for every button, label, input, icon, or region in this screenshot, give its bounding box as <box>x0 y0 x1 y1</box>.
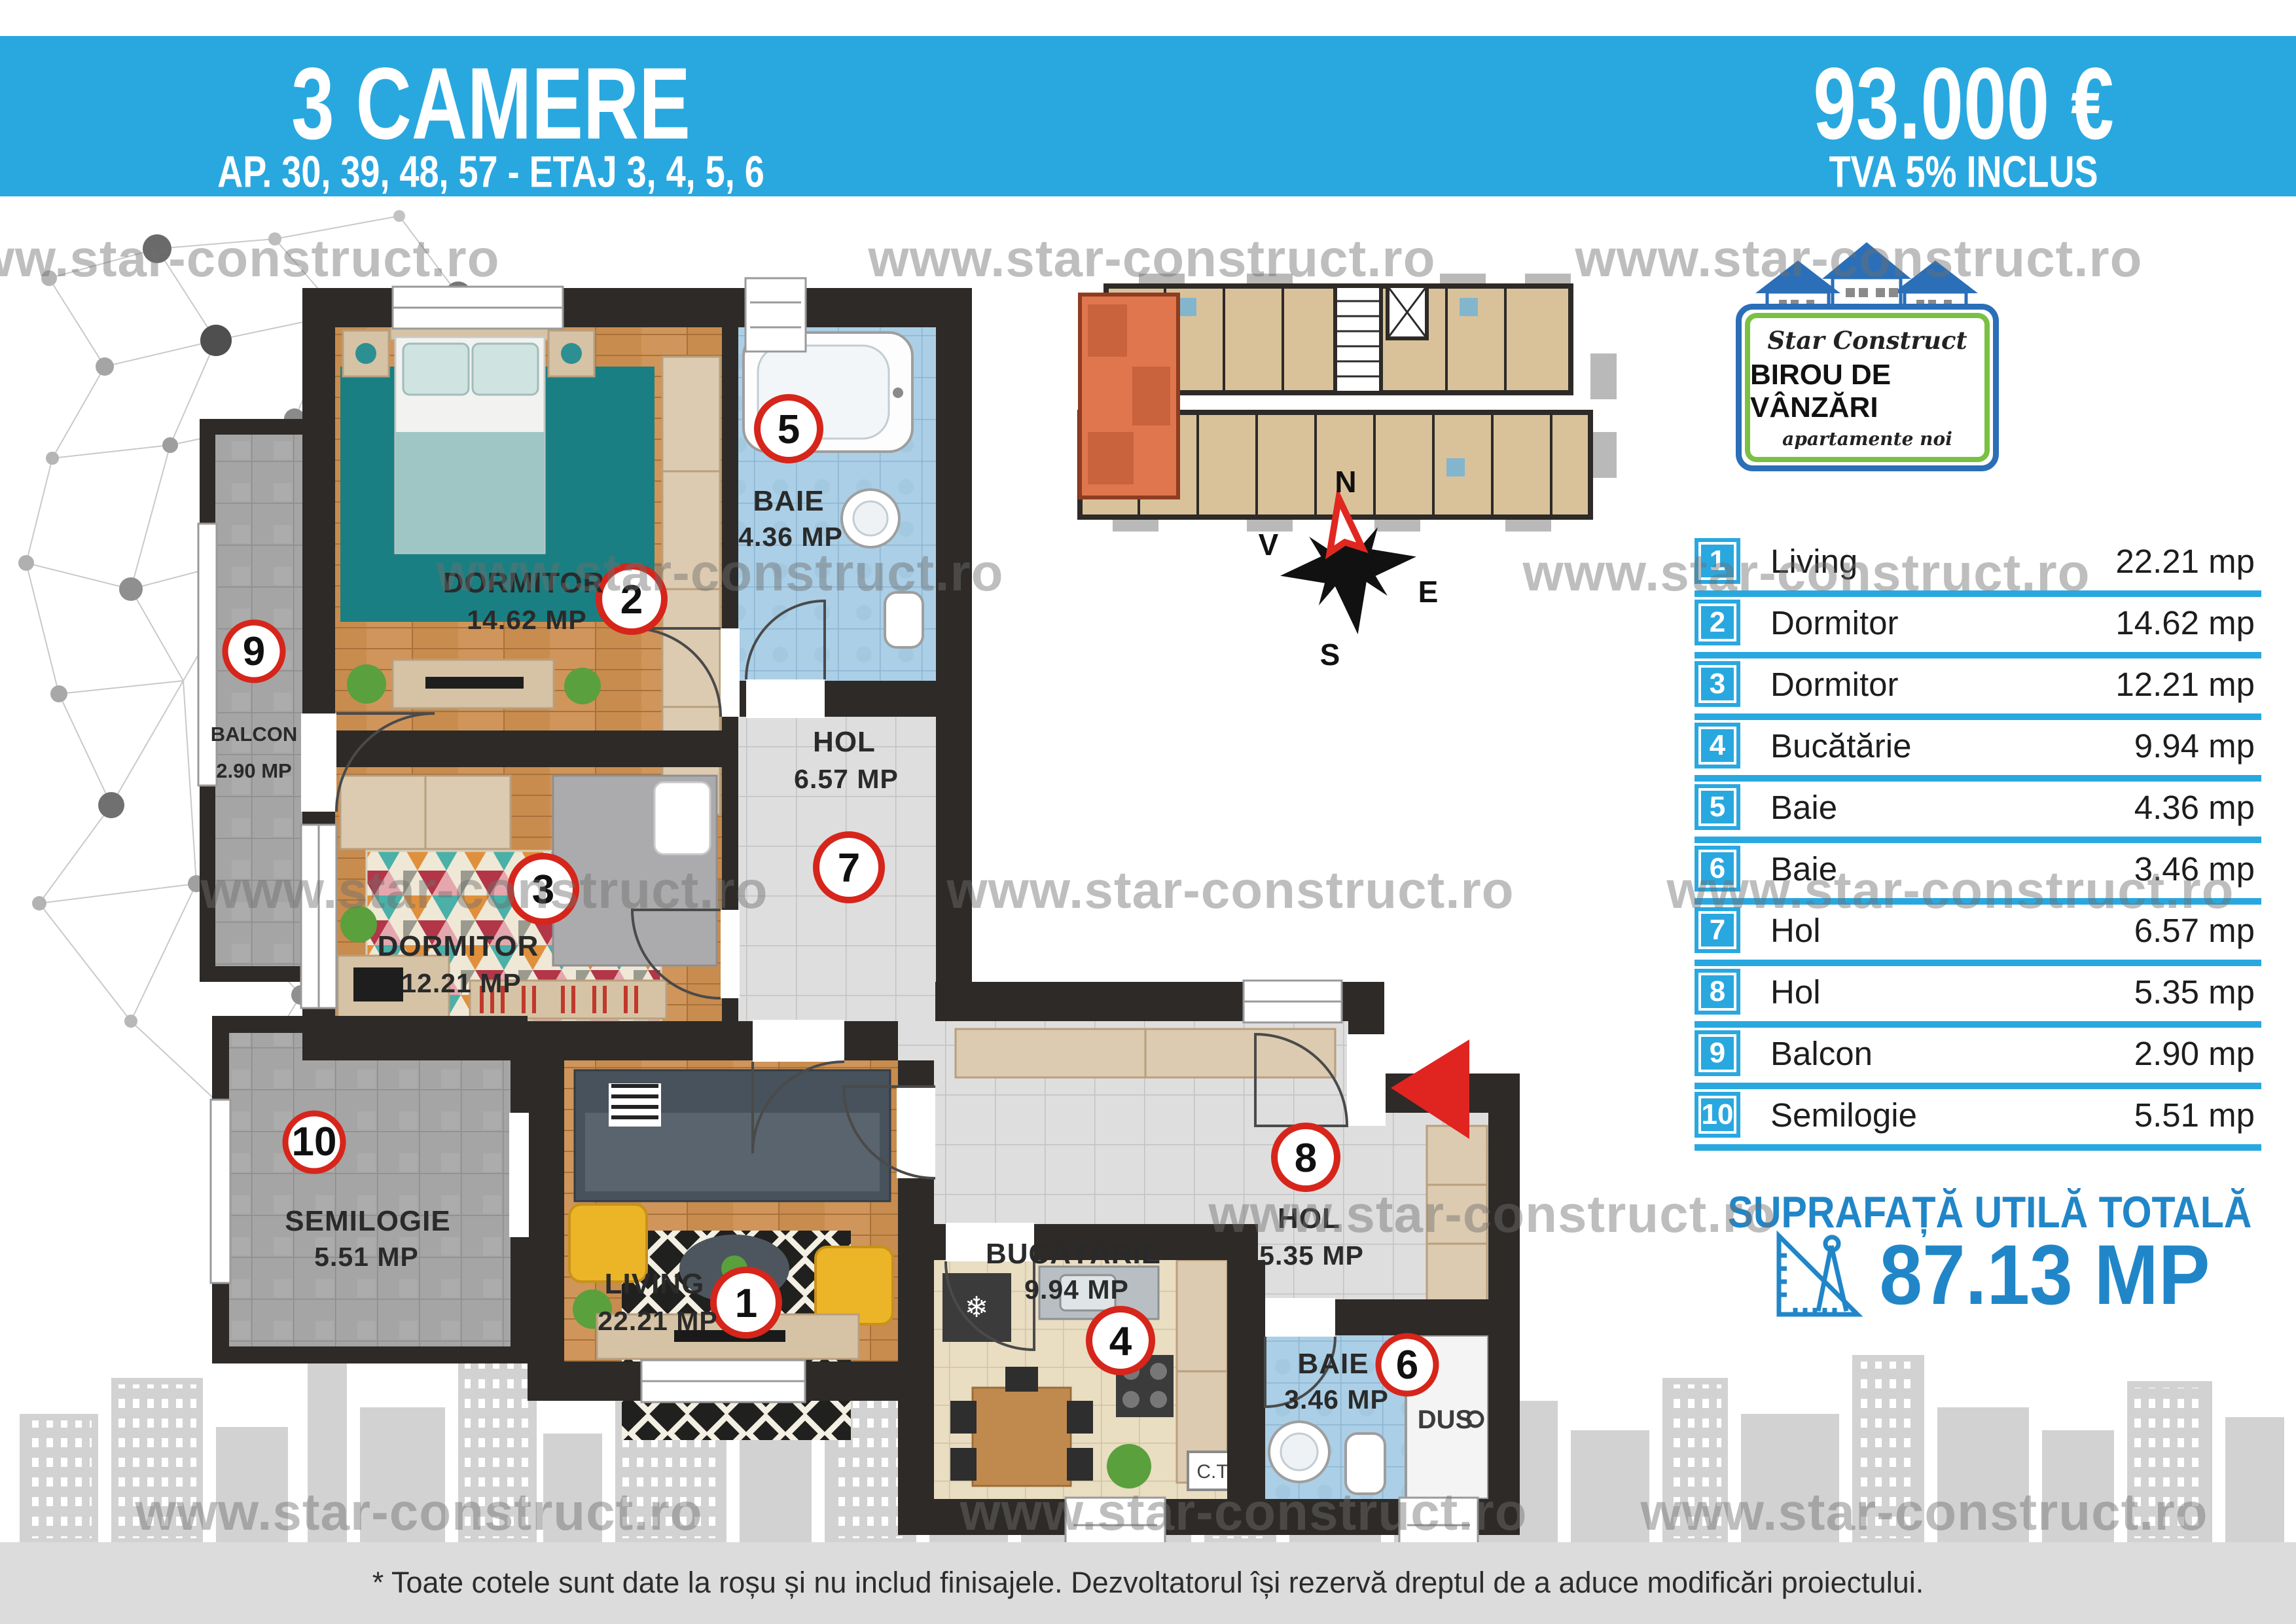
row-underline <box>1695 1144 2261 1151</box>
svg-text:LIVING: LIVING <box>605 1268 705 1300</box>
svg-text:6: 6 <box>1396 1343 1418 1388</box>
svg-text:7: 7 <box>838 846 860 891</box>
compass-v: V <box>1259 528 1279 562</box>
row-room-area: 22.21 mp <box>2115 542 2255 581</box>
row-room-area: 5.51 mp <box>2134 1096 2255 1134</box>
row-room-label: Hol <box>1770 911 1821 950</box>
table-row: 6Baie3.46 mp <box>1691 844 2261 906</box>
svg-text:HOL: HOL <box>813 726 876 758</box>
svg-text:14.62 MP: 14.62 MP <box>467 605 587 635</box>
dining-table <box>973 1388 1071 1486</box>
ruler-compass-icon <box>1769 1229 1867 1321</box>
svg-text:2: 2 <box>620 577 643 623</box>
svg-text:4.36 MP: 4.36 MP <box>738 522 843 552</box>
row-room-area: 5.35 mp <box>2134 973 2255 1011</box>
row-number-badge: 10 <box>1695 1092 1740 1138</box>
row-number-badge: 2 <box>1695 600 1740 645</box>
row-underline <box>1695 1021 2261 1028</box>
svg-text:4: 4 <box>1109 1319 1132 1364</box>
svg-text:DORMITOR: DORMITOR <box>443 567 605 599</box>
total-area-value-row: 87.13 MP <box>1676 1229 2296 1321</box>
table-row: 1Living22.21 mp <box>1691 537 2261 598</box>
room-balcon-floor <box>215 435 302 966</box>
logo-brand: Star Construct <box>1767 326 1967 355</box>
row-room-label: Dormitor <box>1770 665 1899 704</box>
row-number-badge: 9 <box>1695 1030 1740 1076</box>
row-number-badge: 4 <box>1695 723 1740 768</box>
row-number-badge: 7 <box>1695 907 1740 953</box>
row-room-label: Living <box>1770 542 1857 581</box>
svg-text:5.51 MP: 5.51 MP <box>314 1242 419 1272</box>
row-underline <box>1695 590 2261 597</box>
table-row: 10Semilogie5.51 mp <box>1691 1091 2261 1152</box>
row-room-label: Baie <box>1770 850 1837 888</box>
star-construct-logo: Star Construct BIROU DE VÂNZĂRI apartame… <box>1736 241 1998 467</box>
compass-s: S <box>1320 638 1340 672</box>
svg-text:1: 1 <box>735 1281 757 1326</box>
svg-text:5: 5 <box>778 407 800 452</box>
svg-text:BAIE: BAIE <box>753 485 824 517</box>
hall-wardrobe <box>1427 1126 1487 1301</box>
footer-band: * Toate cotele sunt date la roșu și nu i… <box>0 1542 2296 1624</box>
svg-text:2.90 MP: 2.90 MP <box>216 759 291 782</box>
svg-text:3: 3 <box>532 867 554 912</box>
row-room-label: Dormitor <box>1770 604 1899 642</box>
logo-tagline: apartamente noi <box>1782 428 1952 450</box>
row-underline <box>1695 775 2261 782</box>
svg-text:BALCON: BALCON <box>211 723 298 746</box>
row-room-area: 14.62 mp <box>2115 604 2255 642</box>
row-room-label: Balcon <box>1770 1034 1873 1073</box>
row-room-area: 2.90 mp <box>2134 1034 2255 1073</box>
logo-badge: Star Construct BIROU DE VÂNZĂRI apartame… <box>1736 304 1999 471</box>
svg-text:6.57 MP: 6.57 MP <box>794 764 899 794</box>
row-room-area: 4.36 mp <box>2134 788 2255 827</box>
table-row: 4Bucătărie9.94 mp <box>1691 721 2261 783</box>
dus-label: DUS <box>1418 1405 1473 1434</box>
toilet <box>1346 1434 1385 1494</box>
table-row: 3Dormitor12.21 mp <box>1691 660 2261 721</box>
row-underline <box>1695 713 2261 720</box>
svg-text:5.35 MP: 5.35 MP <box>1259 1240 1364 1271</box>
toilet <box>885 592 923 647</box>
svg-text:22.21 MP: 22.21 MP <box>598 1306 718 1336</box>
table-row: 2Dormitor14.62 mp <box>1691 598 2261 660</box>
row-room-area: 9.94 mp <box>2134 727 2255 765</box>
svg-text:9: 9 <box>243 629 265 674</box>
plant <box>564 668 601 704</box>
row-room-area: 3.46 mp <box>2134 850 2255 888</box>
table-row: 7Hol6.57 mp <box>1691 906 2261 967</box>
row-underline <box>1695 960 2261 966</box>
svg-text:9.94 MP: 9.94 MP <box>1024 1274 1129 1305</box>
plant <box>347 664 386 704</box>
row-room-label: Bucătărie <box>1770 727 1911 765</box>
row-room-area: 6.57 mp <box>2134 911 2255 950</box>
table-row: 5Baie4.36 mp <box>1691 783 2261 844</box>
total-area-value: 87.13 MP <box>1879 1226 2210 1324</box>
svg-text:BAIE: BAIE <box>1297 1348 1369 1380</box>
room-semilogie-floor <box>229 1033 511 1346</box>
svg-text:3.46 MP: 3.46 MP <box>1284 1384 1389 1415</box>
svg-text:8: 8 <box>1295 1136 1317 1181</box>
row-room-label: Baie <box>1770 788 1837 827</box>
svg-text:BUCĂTĂRIE: BUCĂTĂRIE <box>986 1237 1161 1270</box>
armchair-yellow <box>816 1247 893 1324</box>
svg-text:DORMITOR: DORMITOR <box>378 930 539 962</box>
row-number-badge: 5 <box>1695 784 1740 830</box>
plant <box>1107 1444 1151 1489</box>
row-number-badge: 1 <box>1695 538 1740 584</box>
svg-text:10: 10 <box>292 1119 337 1164</box>
row-room-label: Hol <box>1770 973 1821 1011</box>
row-number-badge: 3 <box>1695 661 1740 707</box>
svg-text:HOL: HOL <box>1278 1202 1340 1235</box>
row-underline <box>1695 837 2261 843</box>
compass-e: E <box>1418 575 1439 609</box>
footer-disclaimer: * Toate cotele sunt date la roșu și nu i… <box>0 1566 2296 1600</box>
svg-text:12.21 MP: 12.21 MP <box>401 968 522 998</box>
row-underline <box>1695 898 2261 905</box>
ct-label: C.T. <box>1196 1461 1231 1483</box>
row-number-badge: 6 <box>1695 846 1740 892</box>
table-row: 9Balcon2.90 mp <box>1691 1029 2261 1091</box>
svg-text:SEMILOGIE: SEMILOGIE <box>285 1205 450 1237</box>
table-row: 8Hol5.35 mp <box>1691 967 2261 1029</box>
row-underline <box>1695 1083 2261 1089</box>
compass-n: N <box>1335 465 1356 499</box>
row-underline <box>1695 652 2261 659</box>
row-room-label: Semilogie <box>1770 1096 1917 1134</box>
row-number-badge: 8 <box>1695 969 1740 1015</box>
row-room-area: 12.21 mp <box>2115 665 2255 704</box>
logo-sales-office: BIROU DE VÂNZĂRI <box>1750 359 1984 424</box>
plant <box>340 906 377 943</box>
